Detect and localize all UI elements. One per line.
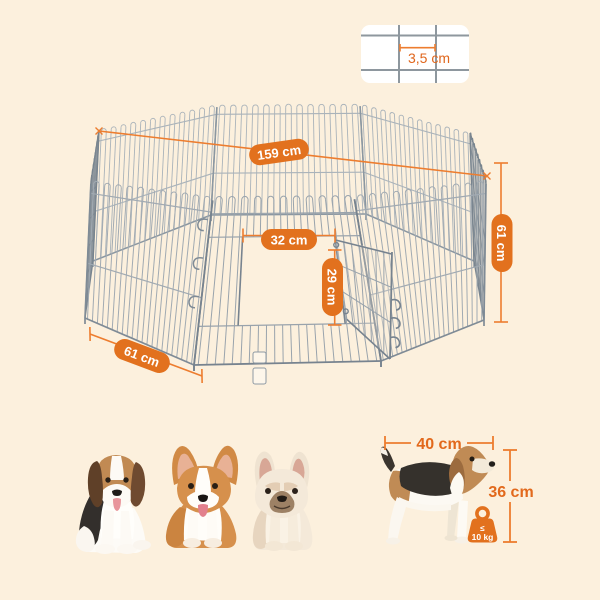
svg-text:32 cm: 32 cm <box>271 233 308 248</box>
svg-text:10 kg: 10 kg <box>472 532 494 542</box>
svg-text:3,5 cm: 3,5 cm <box>408 50 450 66</box>
svg-text:40 cm: 40 cm <box>416 436 461 453</box>
svg-text:29 cm: 29 cm <box>325 269 340 306</box>
svg-text:36 cm: 36 cm <box>488 484 533 501</box>
svg-text:61 cm: 61 cm <box>494 225 509 262</box>
